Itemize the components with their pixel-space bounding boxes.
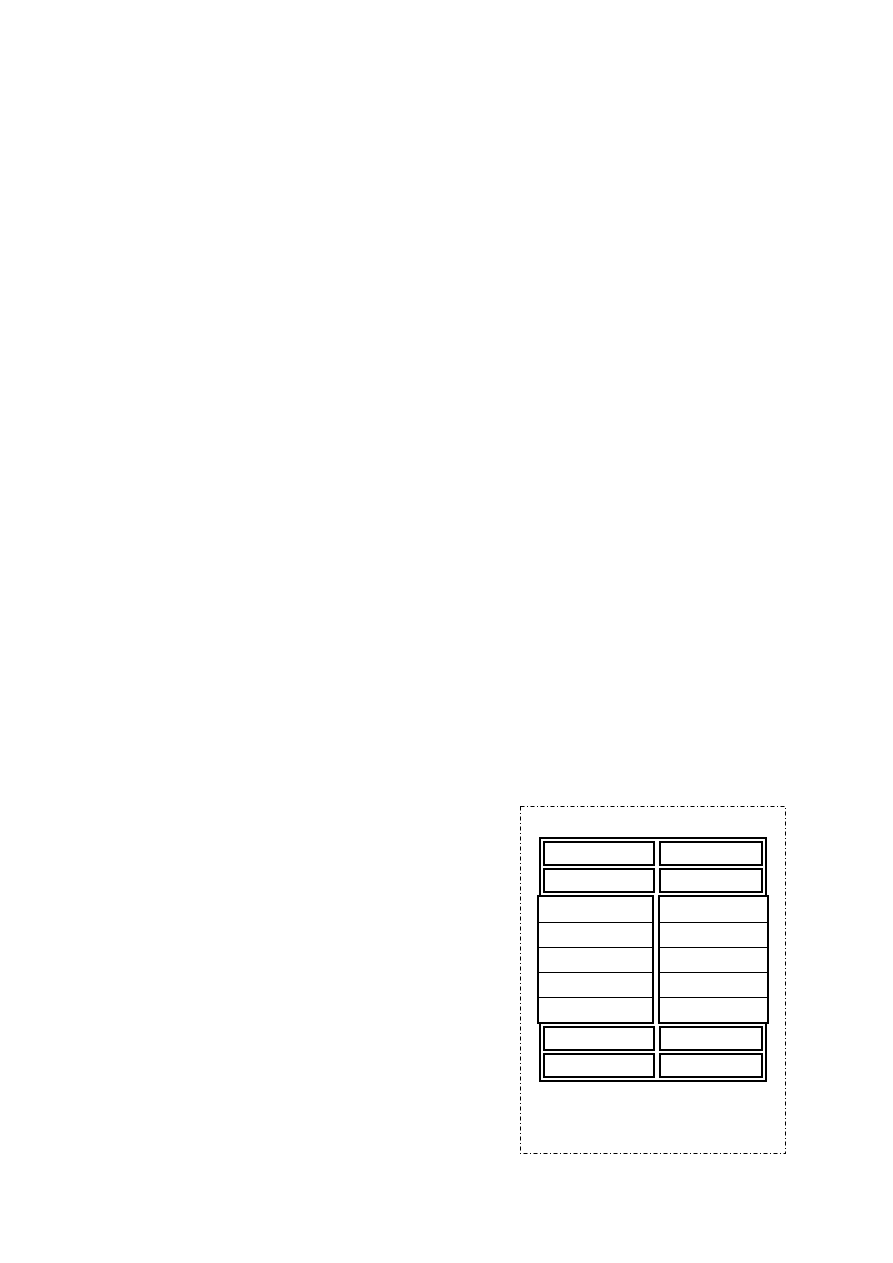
figure-dashed-box <box>520 806 786 1154</box>
table-row <box>543 1026 763 1051</box>
table-cell <box>659 1026 763 1051</box>
table-row <box>543 868 763 893</box>
table-cell <box>543 1053 655 1078</box>
table-sub-row <box>539 947 652 972</box>
table-sub-row <box>539 997 652 1022</box>
table-sub-row <box>660 972 767 997</box>
table-cell <box>659 841 763 866</box>
table-cell <box>543 868 655 893</box>
table-row <box>543 841 763 866</box>
table-cell <box>659 1053 763 1078</box>
table-sub-row <box>539 922 652 947</box>
table-group-cell <box>537 895 654 1024</box>
table-sub-row <box>539 897 652 922</box>
document-page <box>0 0 893 1263</box>
table-sub-row <box>660 897 767 922</box>
table-cell <box>659 868 763 893</box>
table-group-cell <box>658 895 769 1024</box>
table-sub-row <box>660 997 767 1022</box>
table-cell <box>543 1026 655 1051</box>
empty-table <box>539 837 767 1082</box>
table-group-row <box>537 895 769 1024</box>
table-cell <box>543 841 655 866</box>
table-sub-row <box>539 972 652 997</box>
table-sub-row <box>660 922 767 947</box>
table-row <box>543 1053 763 1078</box>
table-sub-row <box>660 947 767 972</box>
